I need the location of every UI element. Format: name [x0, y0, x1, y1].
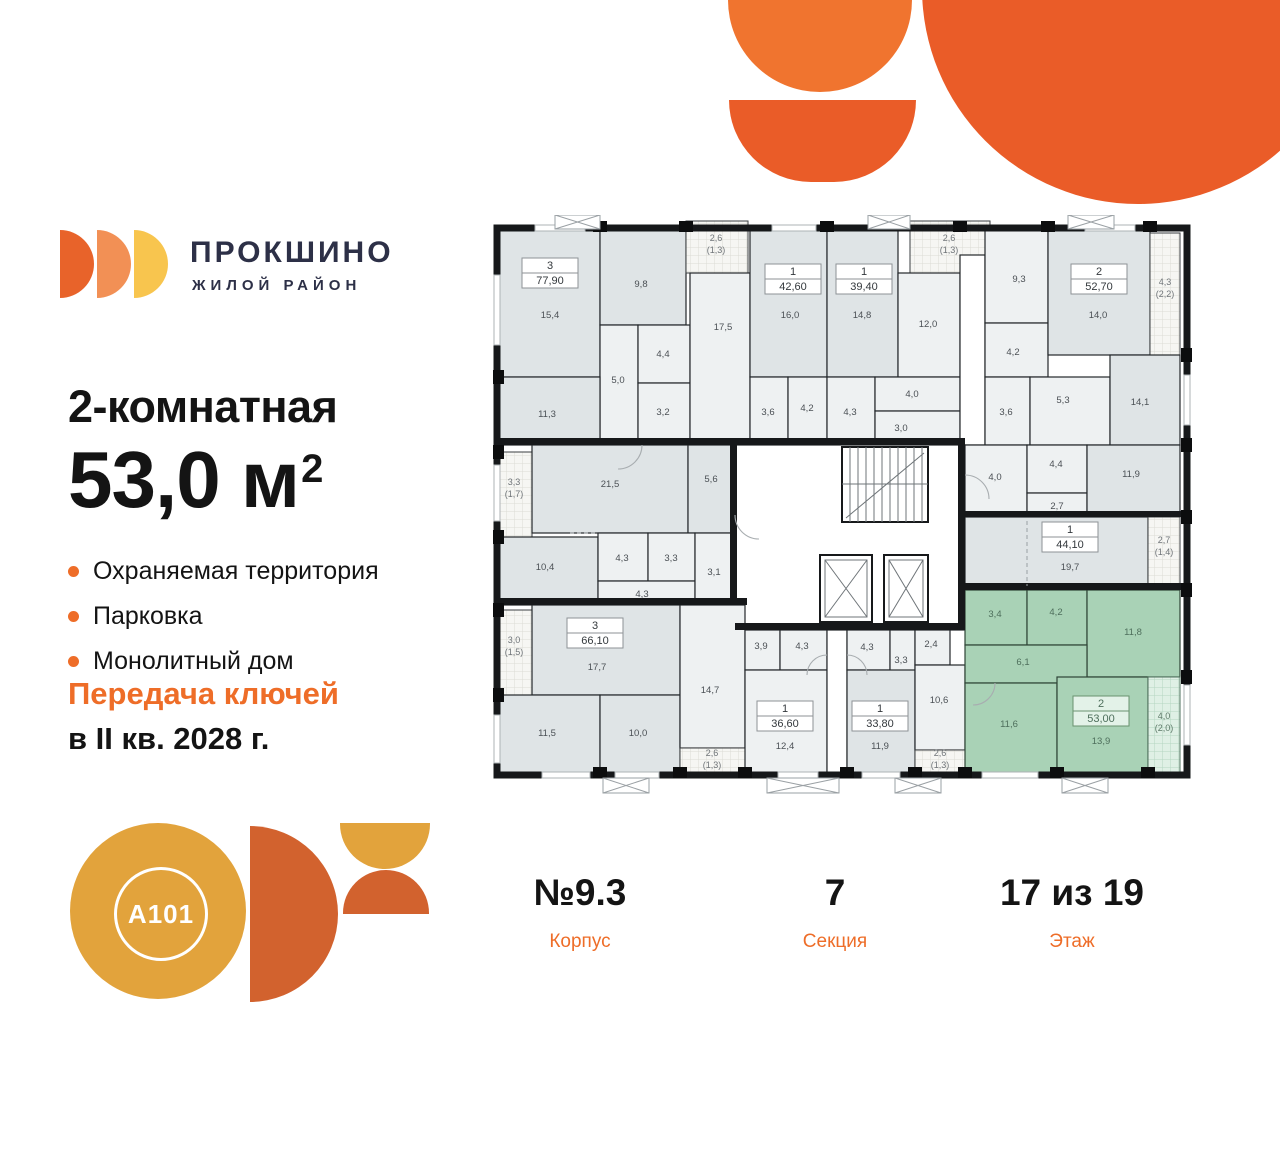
building-label: Корпус: [470, 931, 690, 953]
deco-circle-large: [922, 0, 1280, 204]
room-area-label: 10,4: [536, 562, 555, 573]
bullet-icon: [68, 656, 79, 667]
apartment-label-box: 139,40: [836, 264, 892, 294]
room-area-label: 3,2: [656, 407, 669, 418]
room-area-label: 4,3: [860, 642, 873, 653]
room-area-label: 17,7: [588, 662, 607, 673]
area-heading: 53,0 м2: [68, 434, 322, 526]
apartment-total-area: 39,40: [850, 281, 878, 293]
corridor: [827, 630, 847, 775]
balcony-reduced-area-label: (1,3): [940, 245, 959, 255]
room-area-label: 3,3: [664, 553, 677, 564]
room-area-label: 14,7: [701, 685, 720, 696]
room-area-label: 21,5: [601, 479, 620, 490]
room-area-label: 10,6: [930, 695, 949, 706]
room-area-label: 15,4: [541, 310, 560, 321]
feature-label: Охраняемая территория: [93, 549, 379, 594]
room-area-label: 4,0: [988, 472, 1001, 483]
apartment-total-area: 33,80: [866, 718, 894, 730]
room-area-label: 4,3: [795, 641, 808, 652]
stat-building: №9.3 Корпус: [470, 872, 690, 953]
bullet-icon: [68, 566, 79, 577]
balcony-reduced-area-label: (1,3): [707, 245, 726, 255]
developer-deco-semicircle-top: [340, 823, 430, 869]
apartment-total-area: 66,10: [581, 635, 609, 647]
room-area-label: 3,3: [894, 655, 907, 666]
room-area-label: 11,5: [538, 728, 556, 739]
room-area-label: 14,8: [853, 310, 872, 321]
balcony-reduced-area-label: (1,7): [505, 489, 524, 499]
developer-deco-halfdisc: [250, 826, 338, 1002]
apartment-label-box: 142,60: [765, 264, 821, 294]
deco-semicircle-dark: [729, 100, 916, 182]
feature-item: Парковка: [68, 594, 379, 639]
deco-semicircle-light: [728, 0, 912, 92]
room-area-label: 11,3: [538, 409, 556, 420]
project-title: ПРОКШИНО: [190, 236, 394, 270]
room-area-label: 11,8: [1124, 627, 1142, 638]
balcony-reduced-area-label: (1,4): [1155, 547, 1174, 557]
room-area-label: 13,9: [1092, 736, 1111, 747]
balcony-area-label: 2,6: [934, 748, 947, 758]
room-area-label: 5,6: [704, 474, 717, 485]
apartment-label-box: 377,90: [522, 258, 578, 288]
floor-plan-svg: 377,90142,60139,40252,70144,10366,10136,…: [490, 215, 1195, 800]
logo-semicircle-3: [134, 230, 168, 298]
balcony-reduced-area-label: (2,0): [1155, 723, 1174, 733]
room-area-label: 2,4: [924, 639, 937, 650]
room-area-label: 3,6: [999, 407, 1012, 418]
room-area-label: 12,4: [776, 741, 795, 752]
apartment-type: 3: [547, 260, 553, 272]
room-area-label: 4,4: [1049, 459, 1062, 470]
apartment-type: 2: [1096, 266, 1102, 278]
apartment-label-box[interactable]: 253,00: [1073, 696, 1129, 726]
room-area-label: 11,9: [871, 741, 889, 752]
room-area-label: 9,8: [634, 279, 647, 290]
keys-handover-line1: Передача ключей: [68, 676, 339, 712]
room-area-label: 2,7: [1050, 501, 1063, 512]
room-area-label: 9,3: [1012, 274, 1025, 285]
apartment-type: 1: [790, 266, 796, 278]
balcony-reduced-area-label: (1,5): [505, 647, 524, 657]
room-area-label: 10,0: [629, 728, 648, 739]
room-area-label: 5,0: [611, 375, 624, 386]
apartment-label-box: 366,10: [567, 618, 623, 648]
floor-plan: 377,90142,60139,40252,70144,10366,10136,…: [490, 215, 1195, 805]
room-area-label: 17,5: [714, 322, 733, 333]
feature-item: Охраняемая территория: [68, 549, 379, 594]
room-area-label: 14,0: [1089, 310, 1108, 321]
room-area-label: 14,1: [1131, 397, 1150, 408]
room-area-label: 4,3: [615, 553, 628, 564]
balcony-area-label: 4,3: [1159, 277, 1172, 287]
section-value: 7: [725, 872, 945, 914]
room-area-label: 4,4: [656, 349, 669, 360]
balcony-area-label: 4,0: [1158, 711, 1171, 721]
floor-label: Этаж: [962, 931, 1182, 953]
room-area-label: 4,3: [635, 589, 648, 600]
balcony-area-label: 3,0: [508, 635, 521, 645]
balcony-reduced-area-label: (2,2): [1156, 289, 1175, 299]
room-area-label: 6,1: [1016, 657, 1029, 668]
balcony-area-label: 2,6: [943, 233, 956, 243]
logo-semicircle-1: [60, 230, 94, 298]
room-area-label: 3,9: [754, 641, 767, 652]
apartment-total-area: 44,10: [1056, 539, 1084, 551]
stat-floor: 17 из 19 Этаж: [962, 872, 1182, 953]
keys-handover-line2: в II кв. 2028 г.: [68, 721, 269, 757]
stat-section: 7 Секция: [725, 872, 945, 953]
rooms-count-heading: 2-комнатная: [68, 381, 337, 433]
building-value: №9.3: [470, 872, 690, 914]
balcony-reduced-area-label: (1,3): [931, 760, 950, 770]
room-area-label: 4,2: [1006, 347, 1019, 358]
apartment-type: 1: [877, 703, 883, 715]
room-area-label: 3,4: [988, 609, 1001, 620]
staircase: [842, 447, 928, 522]
apartment-total-area: 52,70: [1085, 281, 1113, 293]
room-area-label: 3,1: [707, 567, 720, 578]
area-superscript: 2: [301, 447, 322, 491]
room-area-label: 3,6: [761, 407, 774, 418]
room-area-label: 4,2: [800, 403, 813, 414]
apartment-label-box: 252,70: [1071, 264, 1127, 294]
developer-logo-text: A101: [128, 899, 194, 930]
corridor: [960, 255, 985, 445]
apartment-type: 3: [592, 620, 598, 632]
apartment-total-area: 42,60: [779, 281, 807, 293]
apartment-label-box: 144,10: [1042, 522, 1098, 552]
area-value: 53,0 м: [68, 435, 299, 524]
apartment-label-box: 136,60: [757, 701, 813, 731]
project-subtitle: ЖИЛОЙ РАЙОН: [192, 277, 361, 294]
room-area-label: 11,9: [1122, 469, 1140, 480]
apartment-total-area: 53,00: [1087, 713, 1115, 725]
balcony-reduced-area-label: (1,3): [703, 760, 722, 770]
balcony-area-label: 3,3: [508, 477, 521, 487]
room-area-label: 12,0: [919, 319, 938, 330]
apartment-label-box: 133,80: [852, 701, 908, 731]
room-area-label: 4,0: [905, 389, 918, 400]
feature-list: Охраняемая территория Парковка Монолитны…: [68, 549, 379, 684]
room-area-label: 5,3: [1056, 395, 1069, 406]
feature-label: Парковка: [93, 594, 203, 639]
developer-logo-ring: A101: [114, 867, 208, 961]
room-area-label: 4,2: [1049, 607, 1062, 618]
bullet-icon: [68, 611, 79, 622]
floor-value: 17 из 19: [962, 872, 1182, 914]
rooms-layer: [497, 221, 1180, 775]
balcony-area-label: 2,6: [710, 233, 723, 243]
logo-semicircle-2: [97, 230, 131, 298]
apartment-total-area: 77,90: [536, 275, 564, 287]
room-area-label: 4,3: [843, 407, 856, 418]
apartment-type: 1: [782, 703, 788, 715]
apartment-type: 1: [861, 266, 867, 278]
room-area-label: 19,7: [1061, 562, 1080, 573]
apartment-total-area: 36,60: [771, 718, 799, 730]
room-area-label: 11,6: [1000, 719, 1018, 730]
section-label: Секция: [725, 931, 945, 953]
apartment-type: 1: [1067, 524, 1073, 536]
developer-deco-semicircle-bottom: [343, 870, 429, 914]
balcony-area-label: 2,7: [1158, 535, 1171, 545]
apartment-type: 2: [1098, 698, 1104, 710]
room-area-label: 3,0: [894, 423, 907, 434]
room-area-label: 16,0: [781, 310, 800, 321]
balcony-area-label: 2,6: [706, 748, 719, 758]
